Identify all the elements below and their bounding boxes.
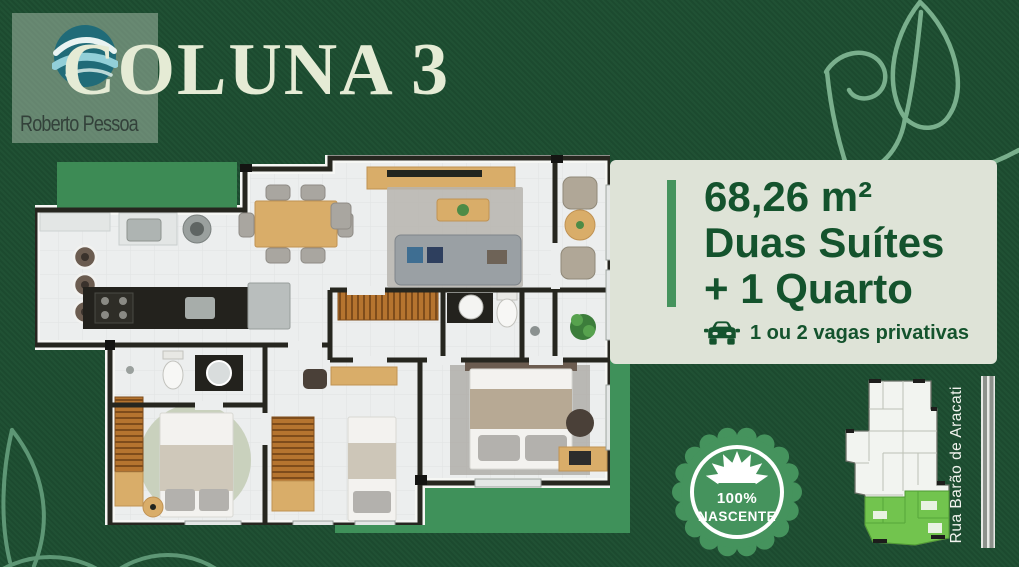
adjacent-unit-mask bbox=[57, 162, 237, 210]
table-plant bbox=[457, 204, 469, 216]
shower-head bbox=[530, 326, 540, 336]
toilet bbox=[497, 299, 517, 327]
fridge bbox=[248, 283, 290, 329]
site-key-plan bbox=[843, 373, 958, 551]
bath-basin bbox=[459, 295, 483, 319]
area-text: 68,26 m² bbox=[704, 174, 944, 220]
marketing-banner: Roberto Pessoa COLUNA 3 bbox=[0, 0, 1019, 567]
info-panel: 68,26 m² Duas Suítes + 1 Quarto 1 ou 2 v… bbox=[610, 160, 997, 364]
street-label: Rua Barão de Aracati bbox=[944, 383, 970, 547]
wardrobe-1 bbox=[115, 397, 143, 472]
kitchen-sink bbox=[127, 219, 161, 241]
kitchen-sink-2 bbox=[185, 297, 215, 319]
wardrobe-2 bbox=[272, 417, 314, 481]
toilet-2 bbox=[163, 361, 183, 389]
shower-drain bbox=[126, 366, 134, 374]
badge-percent: 100% bbox=[717, 490, 757, 507]
desk-chair-2 bbox=[303, 369, 327, 389]
suites-text: Duas Suítes bbox=[704, 220, 944, 266]
street-road-strip bbox=[981, 376, 995, 548]
parking-text: 1 ou 2 vagas privativas bbox=[750, 322, 969, 345]
badge-label: NASCENTE bbox=[698, 509, 776, 524]
page-title: COLUNA 3 bbox=[62, 32, 450, 110]
desk-2 bbox=[331, 367, 397, 385]
street-name: Rua Barão de Aracati bbox=[948, 386, 966, 543]
tv bbox=[387, 170, 482, 177]
desk-chair-master bbox=[566, 409, 594, 437]
car-icon bbox=[704, 320, 740, 346]
nascente-badge: 100% NASCENTE bbox=[672, 427, 802, 557]
brand-name: Roberto Pessoa bbox=[20, 111, 133, 137]
round-mirror bbox=[207, 361, 231, 385]
extra-room-text: + 1 Quarto bbox=[704, 266, 944, 312]
accent-bar bbox=[667, 180, 676, 307]
parking-info: 1 ou 2 vagas privativas bbox=[704, 320, 969, 346]
balcony-set bbox=[561, 177, 597, 279]
service-counter bbox=[40, 213, 110, 231]
floor-plan bbox=[35, 155, 610, 525]
stove bbox=[95, 293, 133, 323]
accent-chair bbox=[331, 203, 351, 229]
